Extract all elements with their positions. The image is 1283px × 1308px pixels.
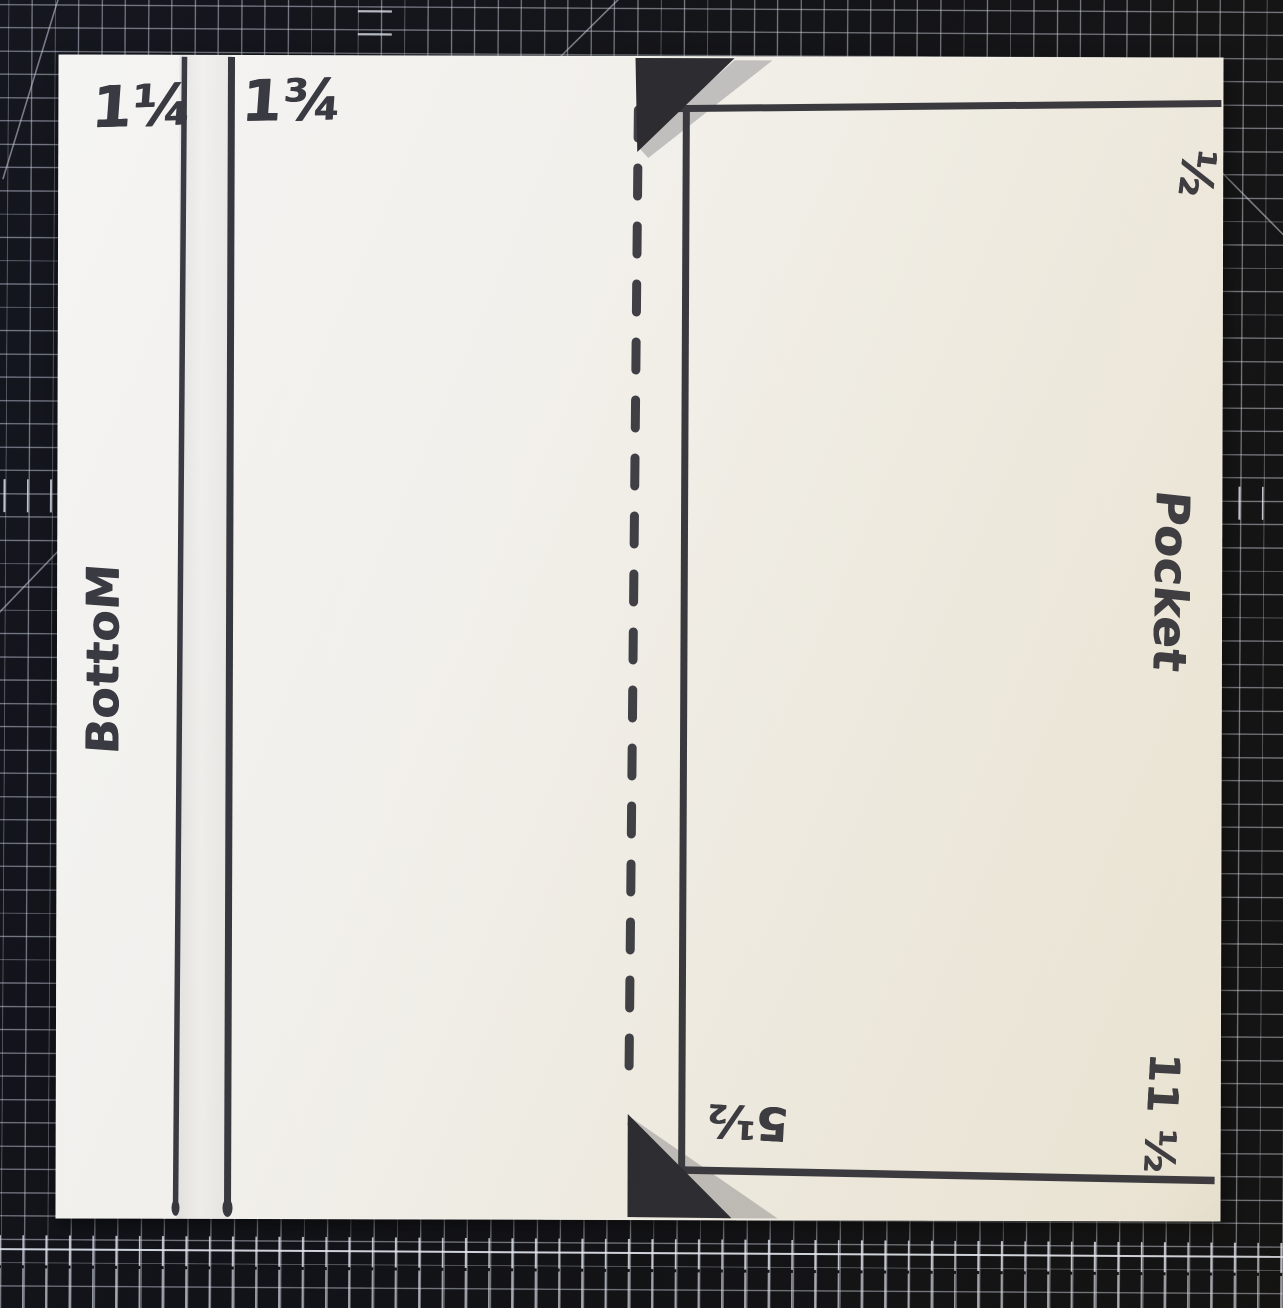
photo-pocket-template: 1¼ 1¾ BottoM Pocket ½ 11 ½ 5½ xyxy=(0,0,1283,1308)
mat-diagonal-top-center xyxy=(554,0,622,64)
label-1-1-4: 1¼ xyxy=(90,72,195,141)
fold-dashed-line xyxy=(629,110,639,1094)
label-half-inch: ½ xyxy=(1167,146,1227,201)
label-1-3-4: 1¾ xyxy=(240,67,345,135)
marker-end-blob xyxy=(171,1200,179,1216)
score-line-1-1-4 xyxy=(175,57,184,1213)
paper-sheet: 1¼ 1¾ BottoM Pocket ½ 11 ½ 5½ xyxy=(55,54,1223,1221)
score-line-1-3-4 xyxy=(227,57,231,1213)
pocket-side-line xyxy=(682,108,687,1170)
label-11-1-2: 11 ½ xyxy=(1134,1052,1190,1175)
mat-diagonal-left-45 xyxy=(0,546,63,622)
mat-diagonal-top-left-steep xyxy=(3,0,59,179)
label-pocket: Pocket xyxy=(1142,488,1200,675)
pocket-top-line xyxy=(636,102,1221,111)
label-5-1-2: 5½ xyxy=(705,1093,789,1151)
mat-diagonal-right-45 xyxy=(1220,172,1283,249)
marker-end-blob xyxy=(222,1199,232,1217)
label-bottom: BottoM xyxy=(76,562,129,756)
template-markings xyxy=(55,54,1223,1221)
